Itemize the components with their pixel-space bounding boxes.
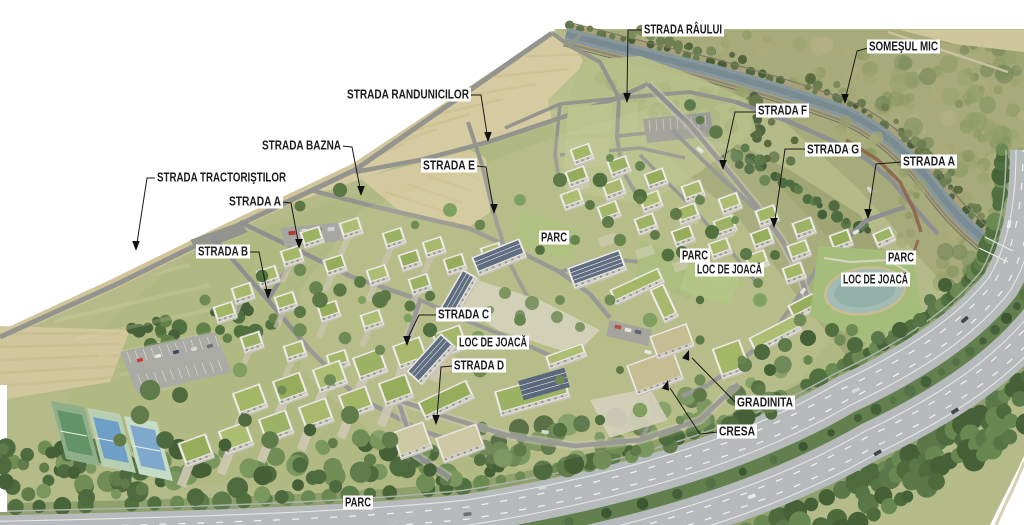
svg-text:STRADA RÂULUI: STRADA RÂULUI: [644, 22, 722, 37]
svg-text:STRADA G: STRADA G: [807, 143, 859, 157]
svg-text:STRADA BAZNA: STRADA BAZNA: [262, 139, 341, 153]
svg-text:STRADA RANDUNICILOR: STRADA RANDUNICILOR: [347, 88, 469, 102]
svg-text:STRADA C: STRADA C: [438, 308, 489, 322]
svg-text:STRADA D: STRADA D: [454, 359, 504, 373]
svg-text:PARC: PARC: [541, 231, 567, 245]
svg-text:STRADA F: STRADA F: [758, 104, 807, 118]
svg-text:LOC DE JOACĂ: LOC DE JOACĂ: [843, 272, 908, 287]
svg-text:STRADA A: STRADA A: [229, 195, 281, 209]
svg-text:GRADINITA: GRADINITA: [737, 396, 793, 410]
svg-text:STRADA E: STRADA E: [423, 159, 475, 173]
svg-text:PARC: PARC: [345, 496, 371, 510]
svg-text:PARC: PARC: [682, 249, 708, 263]
svg-text:PARC: PARC: [888, 251, 914, 265]
svg-text:LOC DE JOACĂ: LOC DE JOACĂ: [459, 335, 527, 350]
svg-text:STRADA B: STRADA B: [198, 245, 248, 259]
svg-text:LOC DE JOACĂ: LOC DE JOACĂ: [697, 262, 762, 277]
svg-text:CRESA: CRESA: [719, 425, 755, 439]
svg-text:SOMEŞUL MIC: SOMEŞUL MIC: [869, 40, 938, 54]
svg-text:STRADA TRACTORIŞTILOR: STRADA TRACTORIŞTILOR: [157, 171, 286, 185]
svg-text:STRADA A: STRADA A: [903, 155, 955, 169]
